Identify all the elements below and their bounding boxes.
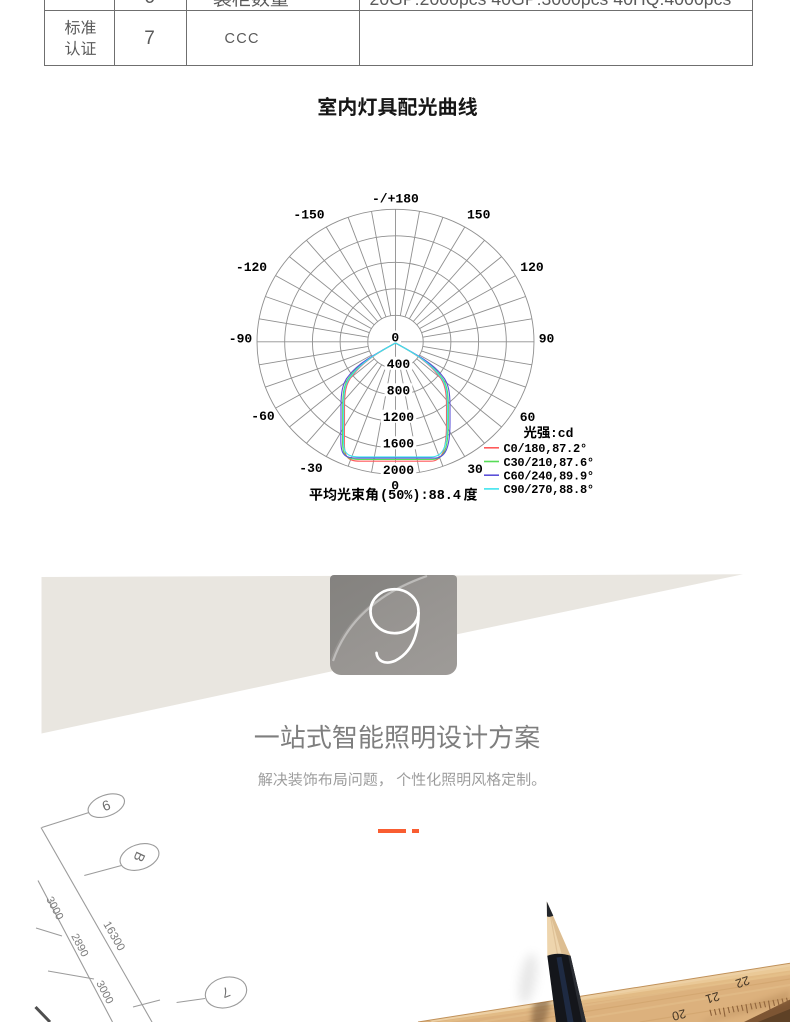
svg-text:-30: -30	[299, 461, 323, 476]
svg-text:7: 7	[219, 984, 232, 1002]
svg-text:-150: -150	[293, 207, 324, 222]
svg-text:1200: 1200	[383, 410, 414, 425]
svg-text:-/+180: -/+180	[372, 191, 419, 206]
svg-text:C60/240,89.9°: C60/240,89.9°	[504, 470, 594, 484]
svg-text:-120: -120	[236, 260, 267, 275]
svg-text:90: 90	[539, 332, 555, 347]
svg-text:16300: 16300	[100, 920, 126, 954]
svg-text:(50%):88.4: (50%):88.4	[380, 489, 461, 504]
svg-text:-60: -60	[251, 409, 275, 424]
svg-text:C90/270,88.8°: C90/270,88.8°	[504, 483, 594, 497]
svg-text:60: 60	[520, 410, 536, 425]
svg-text:150: 150	[467, 207, 491, 222]
svg-text:800: 800	[387, 384, 411, 399]
svg-text:1600: 1600	[383, 437, 414, 452]
svg-text:0: 0	[391, 331, 399, 346]
svg-text:C30/210,87.6°: C30/210,87.6°	[504, 456, 594, 470]
svg-text:400: 400	[387, 357, 411, 372]
svg-text:-90: -90	[229, 332, 253, 347]
svg-text:120: 120	[520, 260, 544, 275]
svg-text:3000: 3000	[43, 895, 65, 922]
svg-text::cd: :cd	[550, 426, 573, 441]
svg-text:9: 9	[100, 797, 113, 815]
svg-text:2000: 2000	[383, 463, 414, 478]
svg-text:B: B	[130, 849, 148, 864]
svg-text:30: 30	[467, 462, 483, 477]
svg-text:C0/180,87.2°: C0/180,87.2°	[504, 442, 587, 456]
